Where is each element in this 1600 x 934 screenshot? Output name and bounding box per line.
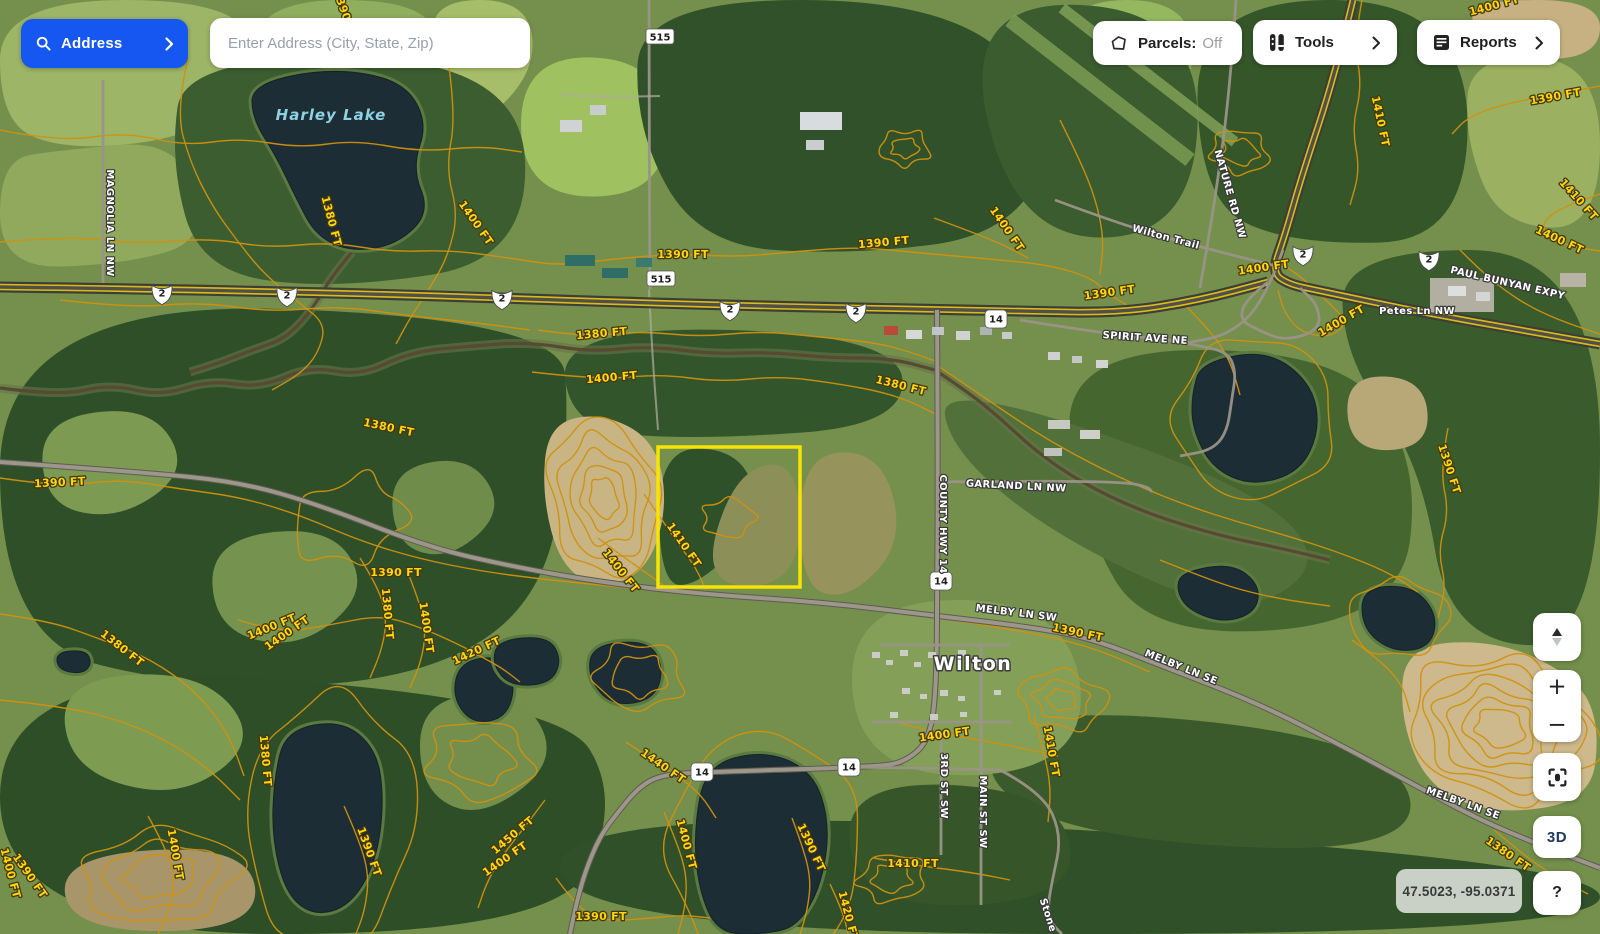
- shield-number: 2: [499, 294, 506, 305]
- zoom-in-button[interactable]: +: [1533, 676, 1580, 698]
- tools-label: Tools: [1295, 34, 1334, 51]
- shield-number: 2: [159, 289, 166, 300]
- three-d-button[interactable]: 3D: [1533, 816, 1581, 858]
- building: [872, 652, 880, 658]
- compass-reset-button[interactable]: [1533, 613, 1581, 661]
- building: [884, 326, 898, 335]
- building: [902, 688, 910, 694]
- highway-shield-c515: 515: [646, 29, 674, 44]
- building: [932, 327, 944, 335]
- shield-number: 14: [842, 763, 856, 774]
- reports-label: Reports: [1460, 34, 1517, 51]
- shield-number: 14: [695, 768, 709, 779]
- contour-label: 1390 FT: [657, 248, 709, 261]
- building: [560, 120, 582, 132]
- search-icon: [36, 36, 52, 52]
- contour-label: 1390 FT: [575, 910, 627, 923]
- address-search-input[interactable]: [210, 18, 530, 68]
- building: [1072, 356, 1082, 363]
- building: [1096, 360, 1108, 368]
- contour-label: 1390 FT: [34, 475, 86, 491]
- help-button[interactable]: ?: [1533, 871, 1581, 915]
- building: [960, 712, 967, 717]
- town-label: Wilton: [934, 653, 1013, 675]
- shield-number: 2: [284, 291, 291, 302]
- contour-label: 1410 FT: [887, 857, 939, 870]
- building: [900, 650, 908, 656]
- chevron-right-icon: [1535, 36, 1544, 50]
- building: [940, 690, 948, 696]
- parcel-polygon-icon: [1109, 34, 1128, 52]
- recenter-button[interactable]: [1533, 753, 1581, 801]
- terrain-patch: [0, 145, 199, 267]
- building: [930, 714, 938, 720]
- building: [800, 112, 842, 130]
- building: [1048, 420, 1070, 429]
- building: [1448, 286, 1466, 296]
- tools-icon: [1269, 33, 1285, 52]
- focus-frame-icon: [1547, 767, 1568, 788]
- chevron-right-icon: [1372, 36, 1381, 50]
- building: [602, 268, 628, 278]
- address-mode-button[interactable]: Address: [21, 19, 188, 68]
- shield-number: 2: [853, 307, 860, 318]
- shield-number: 515: [650, 33, 671, 44]
- lake-name-label: Harley Lake: [276, 106, 387, 124]
- building: [958, 696, 965, 701]
- terrain-patch: [65, 849, 256, 931]
- zoom-out-button[interactable]: −: [1533, 714, 1580, 736]
- building: [1476, 292, 1490, 301]
- street-label: 3RD ST SW: [938, 753, 949, 819]
- building: [1048, 352, 1060, 360]
- street-label: COUNTY HWY 14: [937, 474, 948, 573]
- lake: [57, 651, 90, 673]
- shield-number: 14: [934, 577, 948, 588]
- building: [1560, 273, 1586, 287]
- building: [565, 255, 595, 266]
- terrain-patch: [1347, 376, 1427, 450]
- building: [806, 140, 824, 150]
- building: [1044, 448, 1062, 456]
- parcels-state: Off: [1202, 35, 1222, 52]
- building: [636, 258, 652, 267]
- street-label: MAIN ST SW: [977, 776, 988, 849]
- street-label: Petes Ln NW: [1379, 306, 1455, 317]
- building: [1002, 332, 1012, 339]
- building: [994, 690, 1001, 695]
- zoom-control: + −: [1533, 670, 1581, 742]
- building: [956, 331, 970, 340]
- highway-shield-c14: 14: [930, 572, 952, 590]
- highway-shield-c515: 515: [647, 271, 675, 286]
- street-label: MAGNOLIA LN NW: [104, 169, 115, 276]
- shield-number: 2: [1426, 255, 1433, 266]
- building: [1080, 430, 1100, 439]
- report-document-icon: [1433, 34, 1450, 51]
- building: [906, 330, 922, 339]
- building: [914, 662, 921, 667]
- parcels-label: Parcels:: [1138, 35, 1196, 52]
- highway-shield-c14: 14: [838, 758, 860, 776]
- building: [920, 694, 927, 699]
- map-canvas[interactable]: 2222222515515141414141390 FT1380 FT1400 …: [0, 0, 1600, 934]
- shield-number: 14: [989, 315, 1003, 326]
- shield-number: 515: [651, 275, 672, 286]
- address-button-label: Address: [61, 35, 122, 52]
- coordinates-readout: 47.5023, -95.0371: [1396, 869, 1522, 913]
- tools-button[interactable]: Tools: [1253, 20, 1397, 65]
- highway-shield-c14: 14: [985, 310, 1007, 328]
- parcels-toggle-button[interactable]: Parcels: Off: [1093, 21, 1242, 65]
- chevron-right-icon: [165, 37, 174, 51]
- compass-icon: [1549, 626, 1565, 648]
- shield-number: 2: [727, 305, 734, 316]
- lake: [494, 638, 559, 685]
- highway-shield-c14: 14: [691, 763, 713, 781]
- building: [590, 105, 606, 115]
- shield-number: 2: [1300, 250, 1307, 261]
- building: [890, 712, 898, 718]
- building: [886, 660, 893, 665]
- map-app: 2222222515515141414141390 FT1380 FT1400 …: [0, 0, 1600, 934]
- contour-label: 1390 FT: [370, 566, 422, 579]
- reports-button[interactable]: Reports: [1417, 20, 1560, 65]
